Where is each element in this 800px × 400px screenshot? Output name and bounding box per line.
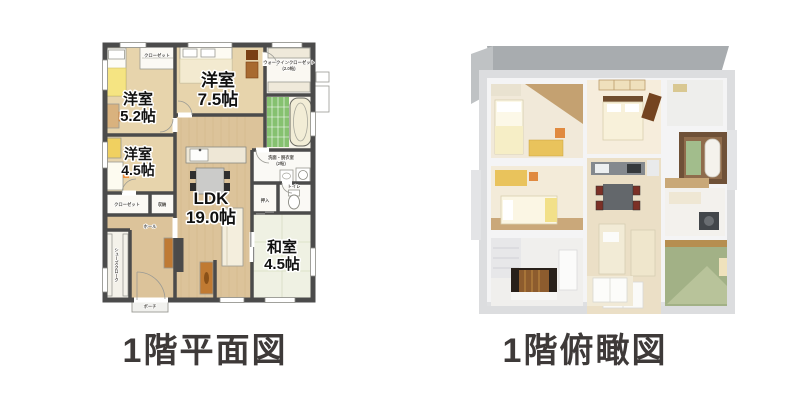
room-size: 5.2帖 — [120, 107, 156, 125]
toilet-label: トイレ — [288, 184, 302, 189]
room-label: 和室 — [267, 238, 297, 256]
floor-plan-figure: 洋室 5.2帖 洋室 7.5帖 洋室 4.5帖 LDK 19.0帖 和室 4.5… — [80, 22, 340, 318]
dresser — [529, 140, 563, 156]
dining-table — [603, 184, 633, 210]
washroom-label: 洗面・脱衣室 — [268, 154, 294, 161]
island-counter — [599, 224, 625, 274]
wic-label: ウォークインクローゼット — [263, 59, 315, 66]
outdoor-equipment — [315, 72, 329, 112]
window — [599, 80, 645, 90]
shoe-cabinet — [200, 262, 213, 294]
hallway-3d — [587, 276, 633, 306]
entrance-3d — [491, 238, 583, 306]
shoes-cloak-label: シューズクローク — [114, 248, 120, 284]
chair-75 — [246, 50, 258, 78]
room-size: 4.5帖 — [121, 162, 154, 178]
room-label: 洋室 — [201, 70, 235, 90]
porch-label: ポーチ — [144, 303, 158, 310]
wic-3d — [667, 80, 723, 126]
room-size: 19.0帖 — [186, 207, 236, 227]
storage-label: 収納 — [158, 201, 167, 208]
washitsu-3d — [665, 240, 727, 306]
overhead-caption: 1階俯瞰図 — [440, 334, 730, 368]
room-label: 洋室 — [123, 90, 153, 108]
floor-plan-caption: 1階平面図 — [60, 334, 350, 368]
closet-52 — [140, 47, 175, 69]
wic-size-label: (2.0帖) — [282, 65, 296, 72]
room-label: LDK — [194, 189, 230, 208]
closet-label-2: クローゼット — [114, 201, 140, 208]
overhead-svg — [448, 20, 778, 320]
cabinet — [631, 230, 655, 276]
dresser — [495, 170, 527, 186]
washroom-size-label: (2帖) — [276, 160, 286, 167]
bed-52 — [107, 48, 126, 96]
overhead-figure — [448, 20, 778, 320]
window — [719, 258, 727, 276]
bedroom-45-3d — [491, 166, 583, 230]
hall-label: ホール — [144, 223, 158, 230]
bathroom-3d — [679, 132, 727, 184]
kitchen-counter — [186, 147, 246, 163]
oshiire-label: 押入 — [261, 197, 270, 204]
bedroom-52-3d — [491, 84, 583, 158]
room-label: 洋室 — [124, 146, 152, 162]
entrance-step — [511, 292, 557, 300]
hall-cabinet — [164, 238, 173, 268]
bathtub — [705, 139, 720, 177]
bathtub — [267, 97, 311, 147]
bedroom-75-3d — [587, 80, 662, 154]
floor-plan-svg: 洋室 5.2帖 洋室 7.5帖 洋室 4.5帖 LDK 19.0帖 和室 4.5… — [80, 22, 340, 318]
room-size: 7.5帖 — [198, 89, 239, 109]
closet-label: クローゼット — [144, 52, 170, 59]
tv-board — [177, 238, 184, 272]
wood-slats — [519, 270, 549, 294]
room-size: 4.5帖 — [264, 255, 300, 273]
fridge — [647, 160, 659, 176]
